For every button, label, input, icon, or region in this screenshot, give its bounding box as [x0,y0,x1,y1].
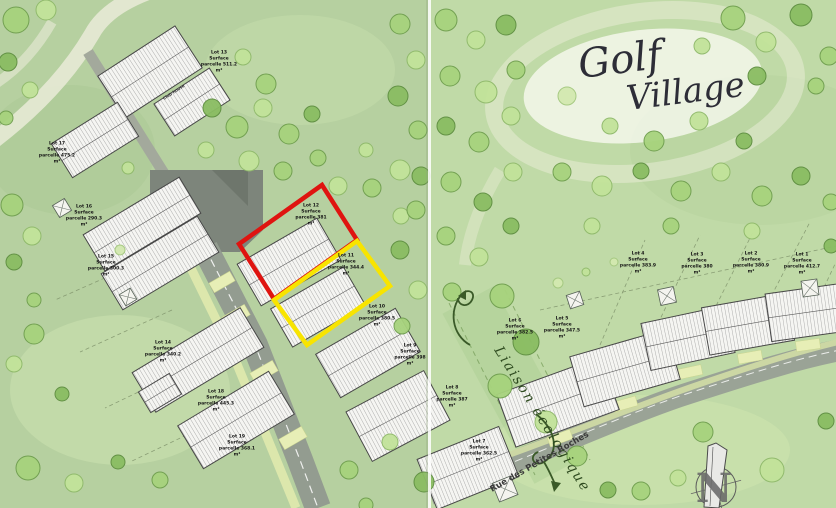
tree-icon [203,99,221,117]
tree-icon [553,163,571,181]
tree-icon [818,413,834,429]
tree-icon [304,106,320,122]
tree-icon [409,121,427,139]
tree-icon [760,458,784,482]
tree-icon [592,176,612,196]
tree-icon [437,227,455,245]
tree-icon [504,163,522,181]
tree-icon [359,498,373,508]
tree-icon [441,172,461,192]
tree-icon [36,0,56,20]
tree-icon [340,461,358,479]
tree-icon [6,254,22,270]
tree-icon [792,167,810,185]
tree-icon [808,78,824,94]
tree-icon [390,160,410,180]
tree-icon [632,482,650,500]
tree-icon [558,87,576,105]
tree-icon [663,218,679,234]
tree-icon [820,47,836,65]
tree-icon [24,324,44,344]
tree-icon [600,482,616,498]
tree-icon [469,132,489,152]
tree-icon [55,387,69,401]
tree-icon [388,86,408,106]
tree-icon [756,32,776,52]
tree-icon [16,456,40,480]
tree-icon [671,181,691,201]
tree-icon [748,67,766,85]
tree-icon [633,163,649,179]
tree-icon [736,133,752,149]
tree-icon [721,6,745,30]
shed [658,287,677,306]
tree-icon [553,278,563,288]
tree-icon [824,239,836,253]
site-plan-canvas: Golf Village Liaison écologique Rue des … [0,0,836,508]
site-plan: Golf Village Liaison écologique Rue des … [0,0,836,508]
tree-icon [6,356,22,372]
tree-icon [274,162,292,180]
tree-icon [610,258,618,266]
tree-icon [503,218,519,234]
shed [801,279,819,297]
tree-icon [752,186,772,206]
tree-icon [111,455,125,469]
tree-icon [390,14,410,34]
tree-icon [254,99,272,117]
tree-icon [226,116,248,138]
tree-icon [470,248,488,266]
tree-icon [382,434,398,450]
tree-icon [359,143,373,157]
tree-icon [0,111,13,125]
tree-icon [513,329,539,355]
tree-icon [1,194,23,216]
tree-icon [690,112,708,130]
tree-icon [407,51,425,69]
tree-icon [474,193,492,211]
tree-icon [467,31,485,49]
tree-icon [391,241,409,259]
compass-north-letter: N [696,465,733,508]
tree-icon [790,4,812,26]
tree-icon [394,318,410,334]
tree-icon [437,117,455,135]
tree-icon [440,66,460,86]
tree-icon [712,163,730,181]
tree-icon [602,118,618,134]
tree-icon [310,150,326,166]
tree-icon [3,7,29,33]
tree-icon [490,284,514,308]
tree-icon [409,281,427,299]
tree-icon [235,49,251,65]
tree-icon [744,223,760,239]
tree-icon [694,38,710,54]
tree-icon [407,201,425,219]
tree-icon [363,179,381,197]
page-seam [428,0,431,508]
tree-icon [65,474,83,492]
tree-icon [0,53,17,71]
tree-icon [23,227,41,245]
tree-icon [693,422,713,442]
tree-icon [22,82,38,98]
tree-icon [27,293,41,307]
tree-icon [239,151,259,171]
tree-icon [582,268,590,276]
tree-icon [435,9,457,31]
tree-icon [475,81,497,103]
tree-icon [152,472,168,488]
tree-icon [122,162,134,174]
tree-icon [329,177,347,195]
tree-icon [115,245,125,255]
page-seam-shadow [426,0,428,508]
tree-icon [198,142,214,158]
tree-icon [823,194,836,210]
tree-icon [279,124,299,144]
tree-icon [256,74,276,94]
tree-icon [584,218,600,234]
tree-icon [502,107,520,125]
tree-icon [644,131,664,151]
tree-icon [670,470,686,486]
tree-icon [496,15,516,35]
tree-icon [507,61,525,79]
